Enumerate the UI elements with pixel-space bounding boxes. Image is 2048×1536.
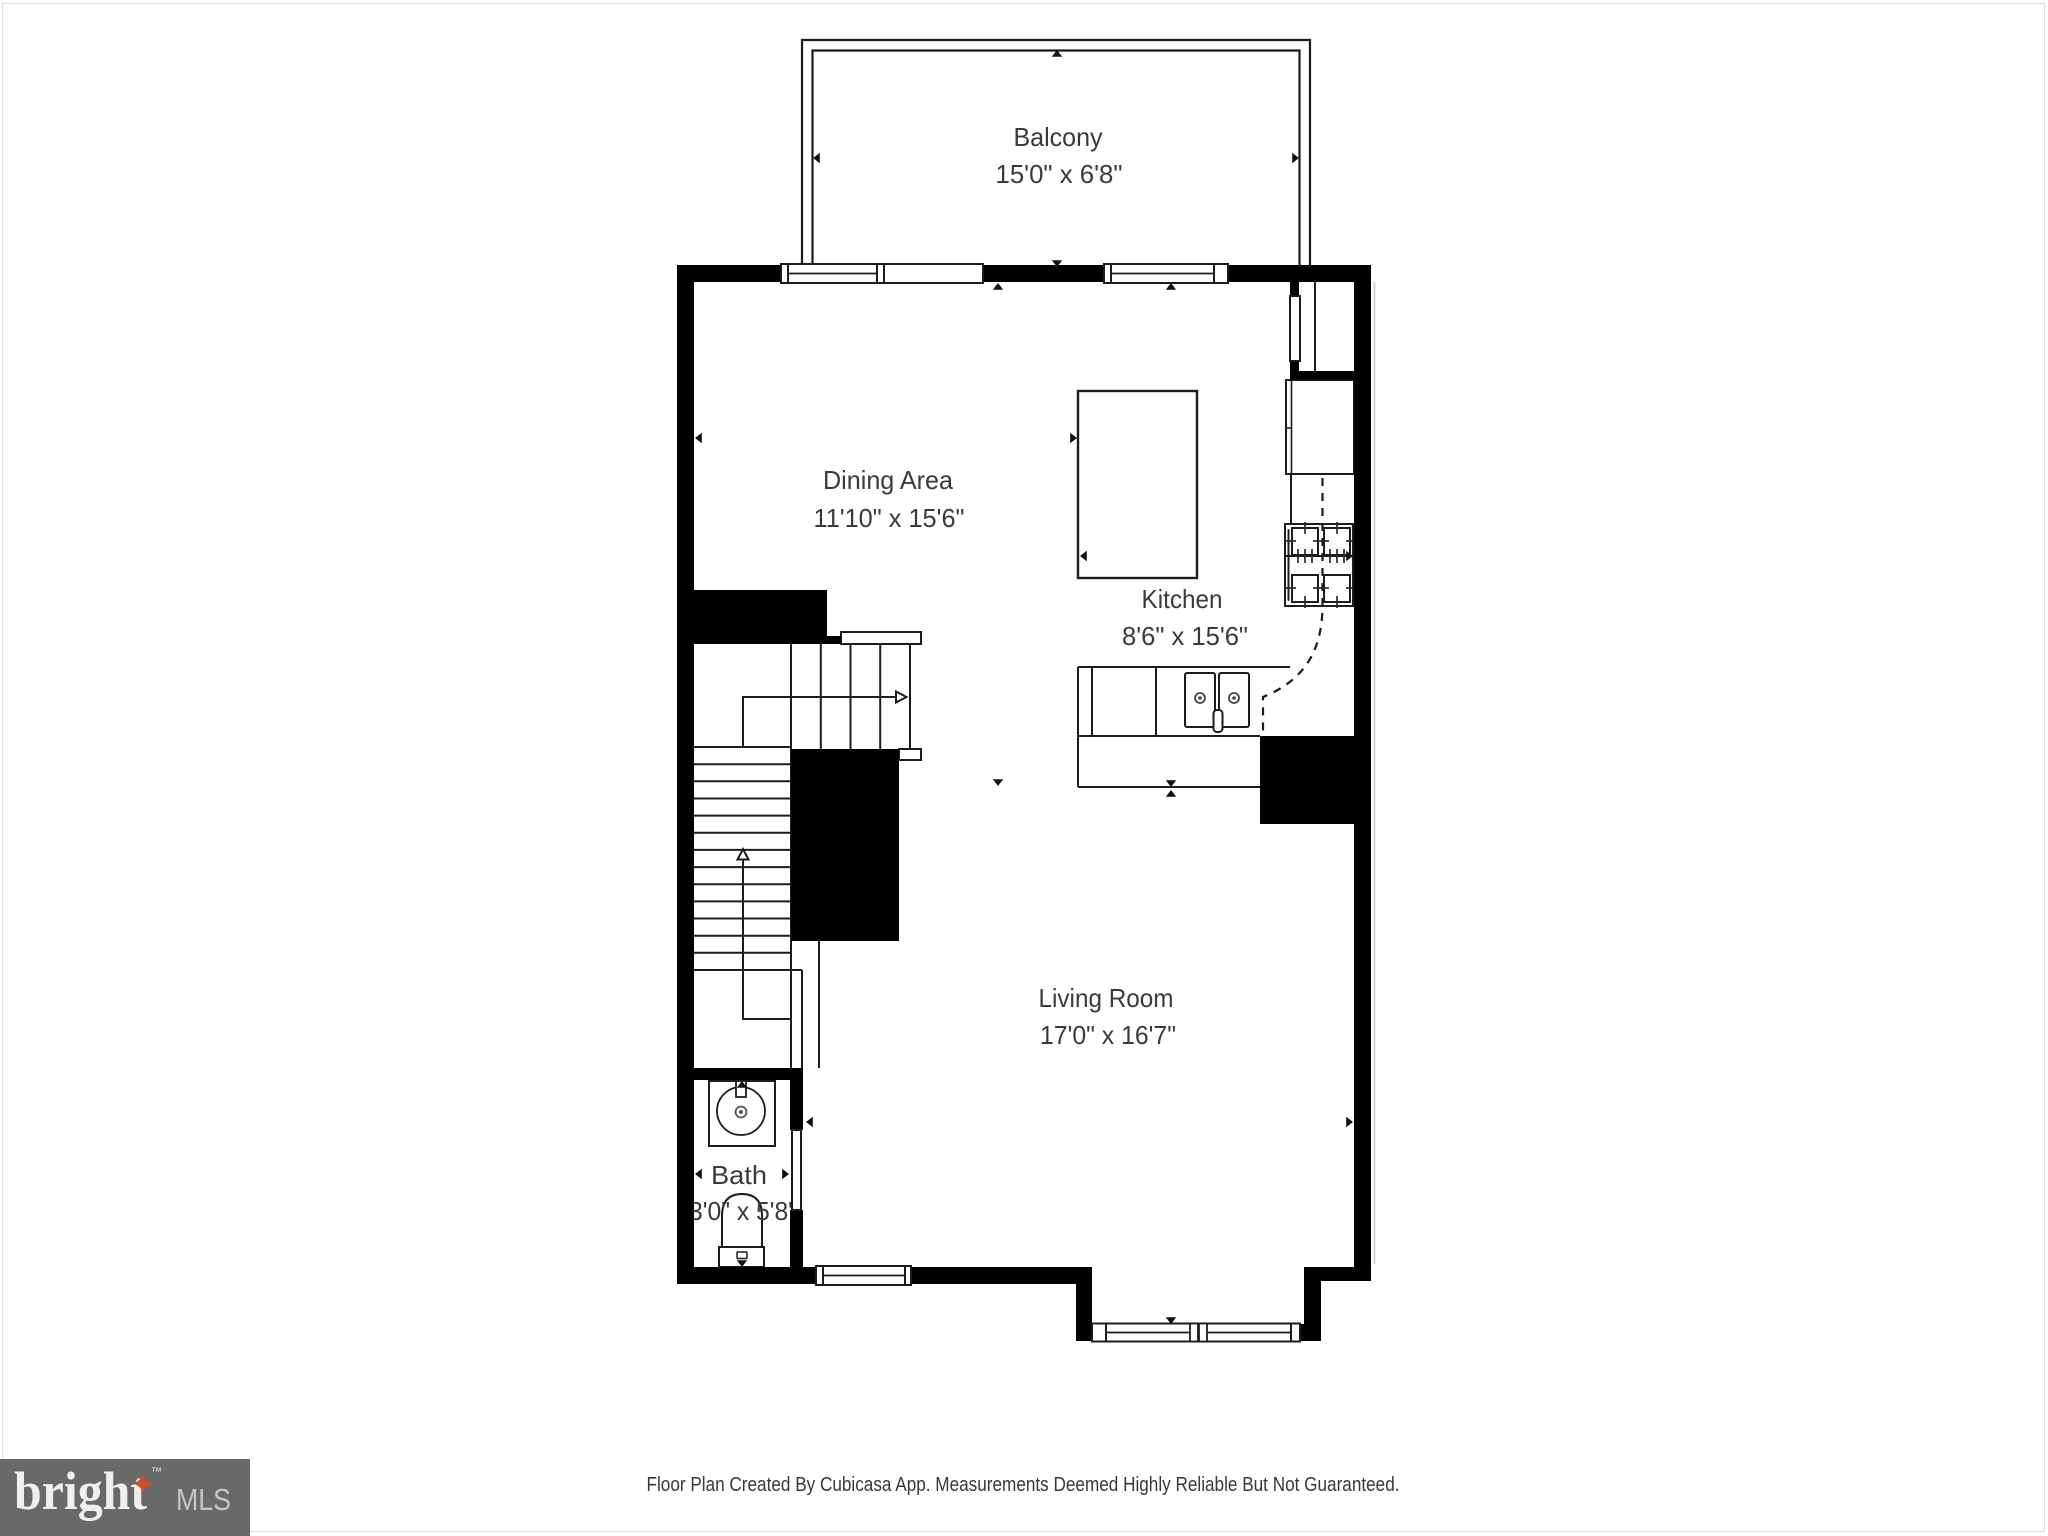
svg-text:8'6" x 15'6": 8'6" x 15'6" (1122, 621, 1248, 651)
svg-text:Living Room: Living Room (1039, 983, 1174, 1013)
svg-text:Balcony: Balcony (1014, 122, 1103, 152)
svg-text:11'10" x 15'6": 11'10" x 15'6" (814, 503, 965, 533)
svg-text:™: ™ (151, 1466, 162, 1478)
svg-text:MLS: MLS (176, 1482, 231, 1517)
svg-text:bright: bright (14, 1461, 147, 1521)
svg-text:Dining Area: Dining Area (823, 465, 954, 495)
svg-text:Kitchen: Kitchen (1142, 584, 1223, 614)
svg-text:3'0" x 5'8": 3'0" x 5'8" (689, 1196, 797, 1226)
svg-text:Floor Plan Created By Cubicasa: Floor Plan Created By Cubicasa App. Meas… (647, 1474, 1400, 1496)
svg-text:15'0" x 6'8": 15'0" x 6'8" (996, 159, 1123, 189)
svg-text:17'0" x 16'7": 17'0" x 16'7" (1040, 1020, 1176, 1050)
svg-text:Bath: Bath (711, 1160, 767, 1190)
